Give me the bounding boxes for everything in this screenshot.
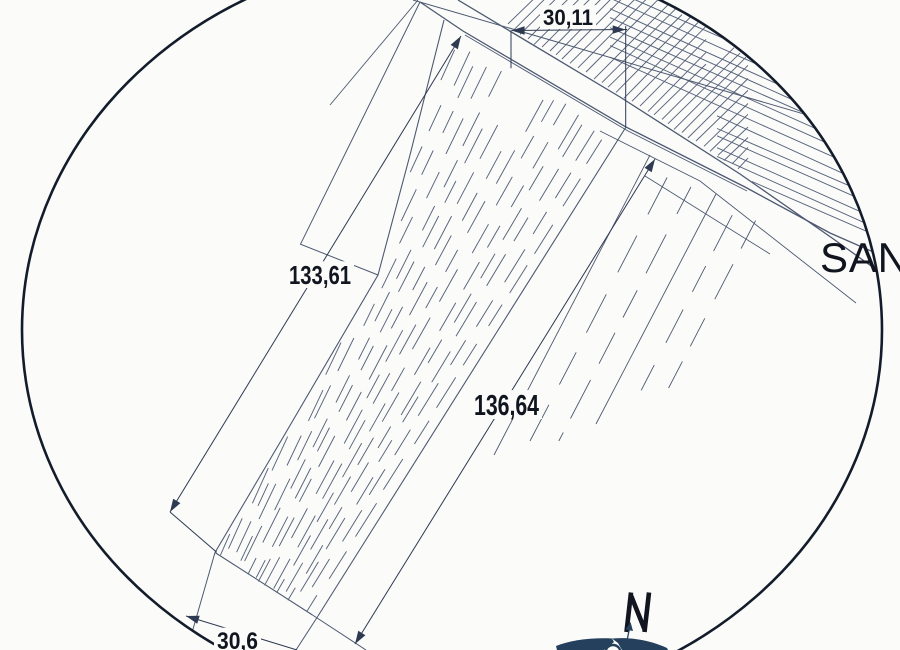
svg-text:SAN: SAN <box>820 234 900 281</box>
svg-text:30,11: 30,11 <box>543 5 593 30</box>
svg-text:30,6: 30,6 <box>217 628 258 650</box>
svg-text:133,61: 133,61 <box>289 260 351 290</box>
svg-text:136,64: 136,64 <box>474 390 539 422</box>
